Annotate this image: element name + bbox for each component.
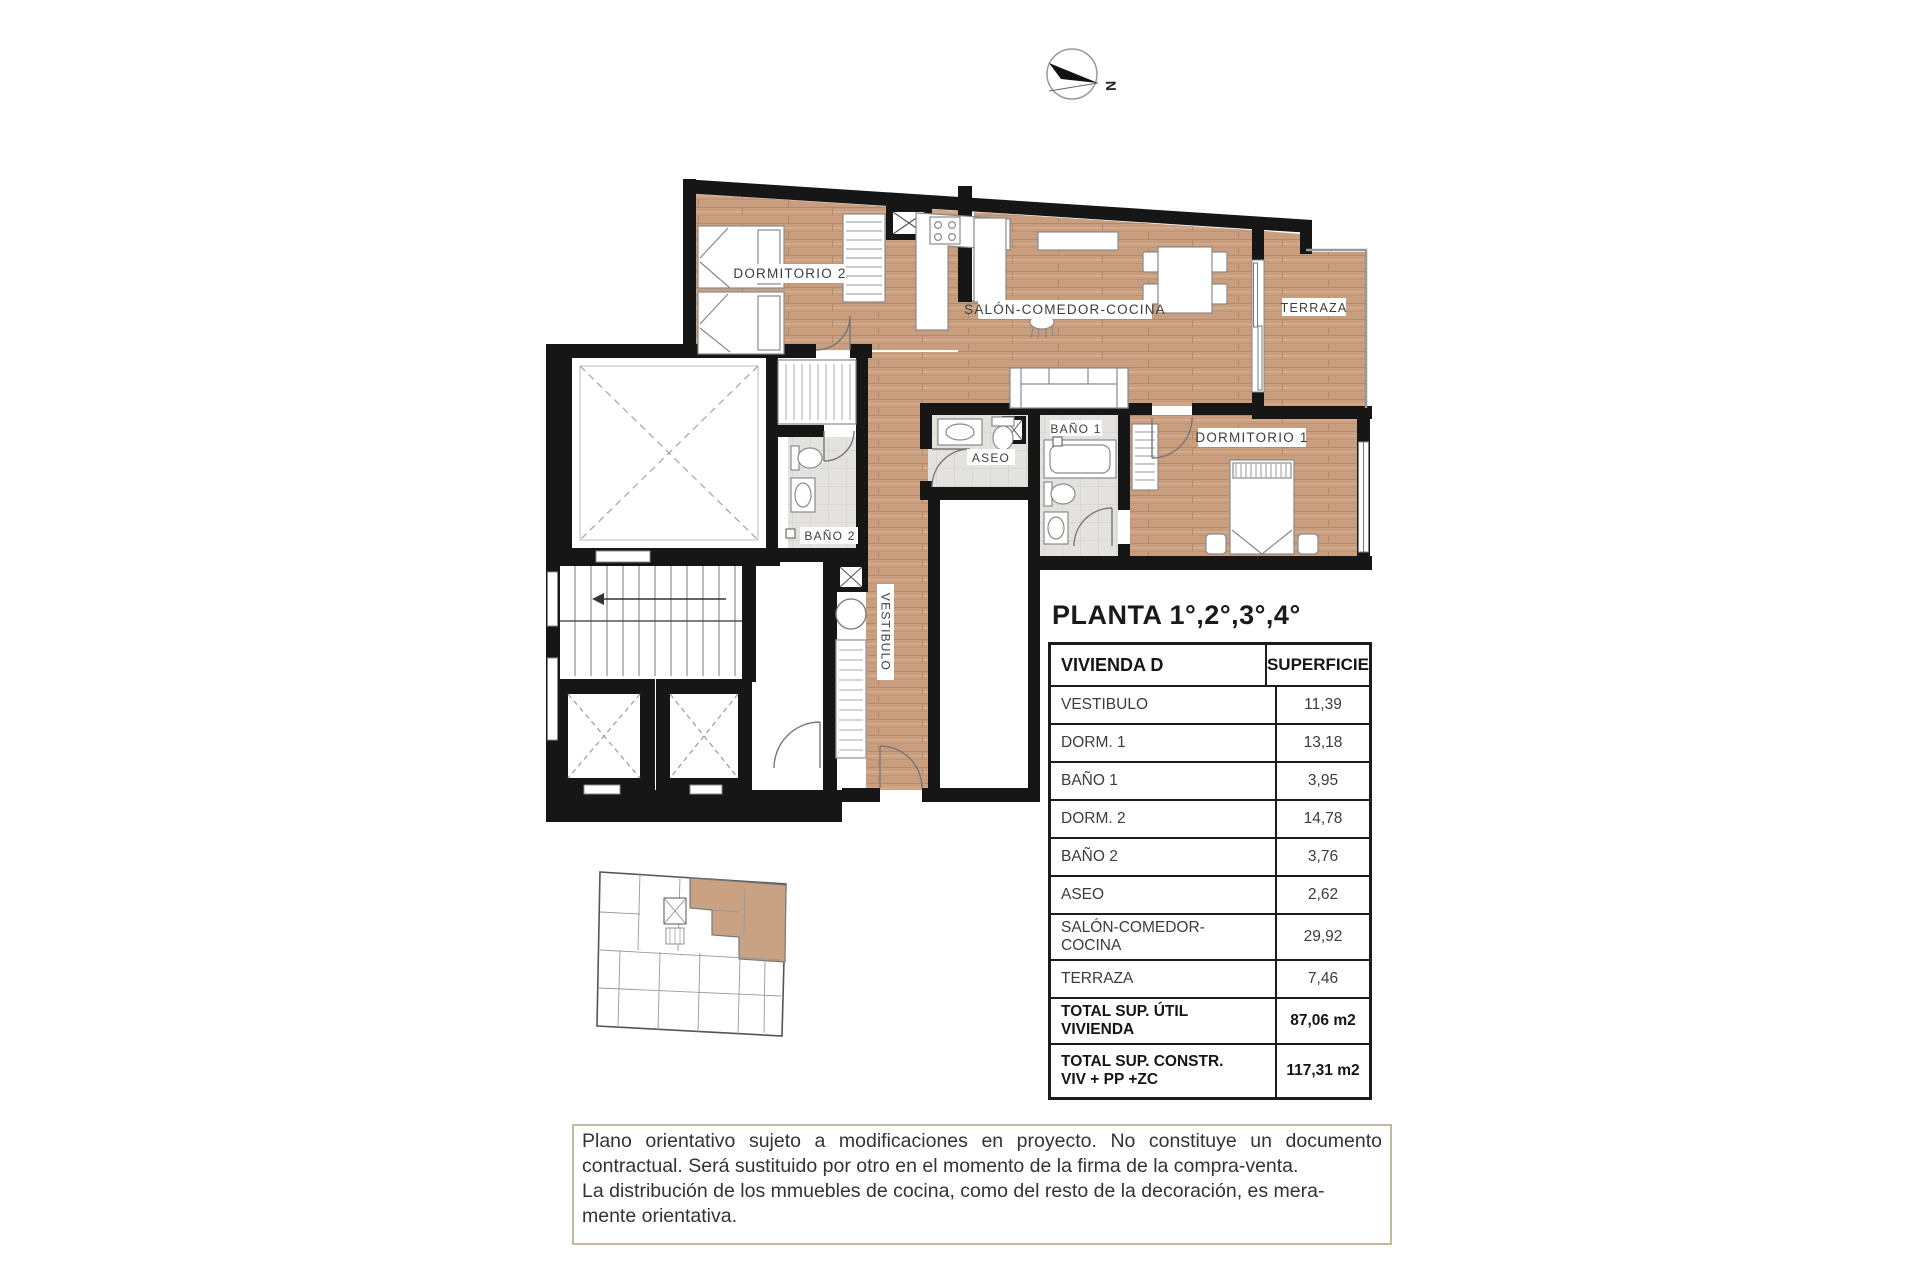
row-label: TOTAL SUP. ÚTIL VIVIENDA	[1051, 999, 1275, 1043]
kitchen-island	[974, 218, 1006, 302]
page-title: PLANTA 1°,2°,3°,4°	[1052, 600, 1301, 631]
sofa	[1010, 368, 1128, 408]
table-header-area: SUPERFICIE	[1265, 645, 1369, 685]
row-label: DORM. 1	[1051, 725, 1275, 761]
room-label-terraza: TERRAZA	[1281, 298, 1348, 316]
row-value: 87,06 m2	[1275, 999, 1369, 1043]
wardrobe-dorm2	[843, 214, 885, 302]
total-constr-line2: VIV + PP +ZC	[1061, 1071, 1265, 1089]
row-value: 117,31 m2	[1275, 1045, 1369, 1097]
table-row: VESTIBULO 11,39	[1051, 687, 1369, 725]
bano1-sink	[1044, 512, 1068, 544]
towel-rail-icon	[1053, 437, 1062, 446]
row-value: 3,76	[1275, 839, 1369, 875]
north-arrow-icon	[1049, 63, 1098, 83]
patio-lightwell	[572, 358, 766, 548]
disclaimer-line: La distribución de los mmuebles de cocin…	[582, 1179, 1382, 1204]
key-plan	[597, 872, 786, 1036]
disclaimer-line: mente orientativa.	[582, 1204, 1382, 1229]
key-plan-core	[664, 898, 686, 944]
corridor-closet	[836, 640, 866, 758]
towel-rail-icon	[786, 529, 795, 538]
floor-plan-drawing: N	[0, 0, 1920, 1280]
disclaimer-line: contractual. Será sustituido por otro en…	[582, 1154, 1382, 1179]
row-value: 29,92	[1275, 915, 1369, 959]
core-shaft	[834, 562, 868, 592]
aseo-sink	[938, 419, 982, 445]
svg-text:VESTIBULO: VESTIBULO	[879, 593, 893, 671]
bano1-toilet	[1044, 482, 1075, 506]
row-value: 14,78	[1275, 801, 1369, 837]
table-header-name: VIVIENDA D	[1051, 645, 1265, 685]
disclaimer-note: Plano orientativo sujeto a modificacione…	[572, 1124, 1392, 1245]
table-total-util-row: TOTAL SUP. ÚTIL VIVIENDA 87,06 m2	[1051, 999, 1369, 1045]
row-label: TERRAZA	[1051, 961, 1275, 997]
table-row: DORM. 1 13,18	[1051, 725, 1369, 763]
svg-text:DORMITORIO 1: DORMITORIO 1	[1195, 430, 1308, 445]
compass-north-label: N	[1103, 80, 1119, 91]
row-label: BAÑO 2	[1051, 839, 1275, 875]
svg-text:SALÓN-COMEDOR-COCINA: SALÓN-COMEDOR-COCINA	[964, 302, 1166, 317]
row-value: 7,46	[1275, 961, 1369, 997]
room-label-dormitorio1: DORMITORIO 1	[1195, 428, 1308, 447]
svg-text:BAÑO 2: BAÑO 2	[804, 529, 855, 543]
svg-text:ASEO: ASEO	[972, 451, 1010, 465]
row-label: SALÓN-COMEDOR-COCINA	[1051, 915, 1275, 959]
landing-door	[774, 722, 820, 768]
bed-single-2	[698, 292, 784, 354]
row-value: 13,18	[1275, 725, 1369, 761]
table-row: DORM. 2 14,78	[1051, 801, 1369, 839]
room-label-dormitorio2: DORMITORIO 2	[733, 264, 846, 283]
row-value: 2,62	[1275, 877, 1369, 913]
terrace-sliding-door	[1252, 260, 1264, 392]
row-label: ASEO	[1051, 877, 1275, 913]
wardrobe-dorm1	[1132, 424, 1158, 490]
elevator-1	[553, 679, 655, 792]
disclaimer-line: Plano orientativo sujeto a modificacione…	[582, 1129, 1382, 1154]
row-value: 11,39	[1275, 687, 1369, 723]
sideboard	[1038, 232, 1118, 250]
room-label-vestibulo: VESTIBULO	[877, 584, 894, 680]
compass: N	[1047, 49, 1119, 99]
row-label: BAÑO 1	[1051, 763, 1275, 799]
table-row: BAÑO 1 3,95	[1051, 763, 1369, 801]
dorm1-window	[1359, 442, 1369, 552]
table-row: TERRAZA 7,46	[1051, 961, 1369, 999]
bano2-toilet	[791, 446, 822, 470]
elevator-2	[656, 679, 752, 792]
row-label: VESTIBULO	[1051, 687, 1275, 723]
table-row: ASEO 2,62	[1051, 877, 1369, 915]
svg-text:BAÑO 1: BAÑO 1	[1050, 422, 1101, 436]
building-core	[553, 358, 766, 792]
row-label: DORM. 2	[1051, 801, 1275, 837]
room-label-salon: SALÓN-COMEDOR-COCINA	[964, 300, 1166, 319]
table-row: SALÓN-COMEDOR-COCINA 29,92	[1051, 915, 1369, 961]
table-total-constr-row: TOTAL SUP. CONSTR. VIV + PP +ZC 117,31 m…	[1051, 1045, 1369, 1097]
hall-closet	[778, 360, 856, 424]
room-label-aseo: ASEO	[967, 449, 1015, 465]
floor-plan-page: N	[0, 0, 1920, 1280]
row-value: 3,95	[1275, 763, 1369, 799]
table-header-row: VIVIENDA D SUPERFICIE	[1051, 645, 1369, 687]
bano2-sink	[791, 478, 815, 512]
row-label: TOTAL SUP. CONSTR. VIV + PP +ZC	[1051, 1045, 1275, 1097]
stairs	[560, 566, 742, 676]
table-row: BAÑO 2 3,76	[1051, 839, 1369, 877]
total-constr-line1: TOTAL SUP. CONSTR.	[1061, 1053, 1265, 1071]
svg-text:TERRAZA: TERRAZA	[1281, 301, 1348, 315]
svg-text:DORMITORIO 2: DORMITORIO 2	[733, 266, 846, 281]
aseo-toilet	[992, 417, 1014, 450]
area-table: VIVIENDA D SUPERFICIE VESTIBULO 11,39 DO…	[1048, 642, 1372, 1100]
stove-icon	[930, 217, 960, 244]
water-heater	[836, 599, 866, 629]
